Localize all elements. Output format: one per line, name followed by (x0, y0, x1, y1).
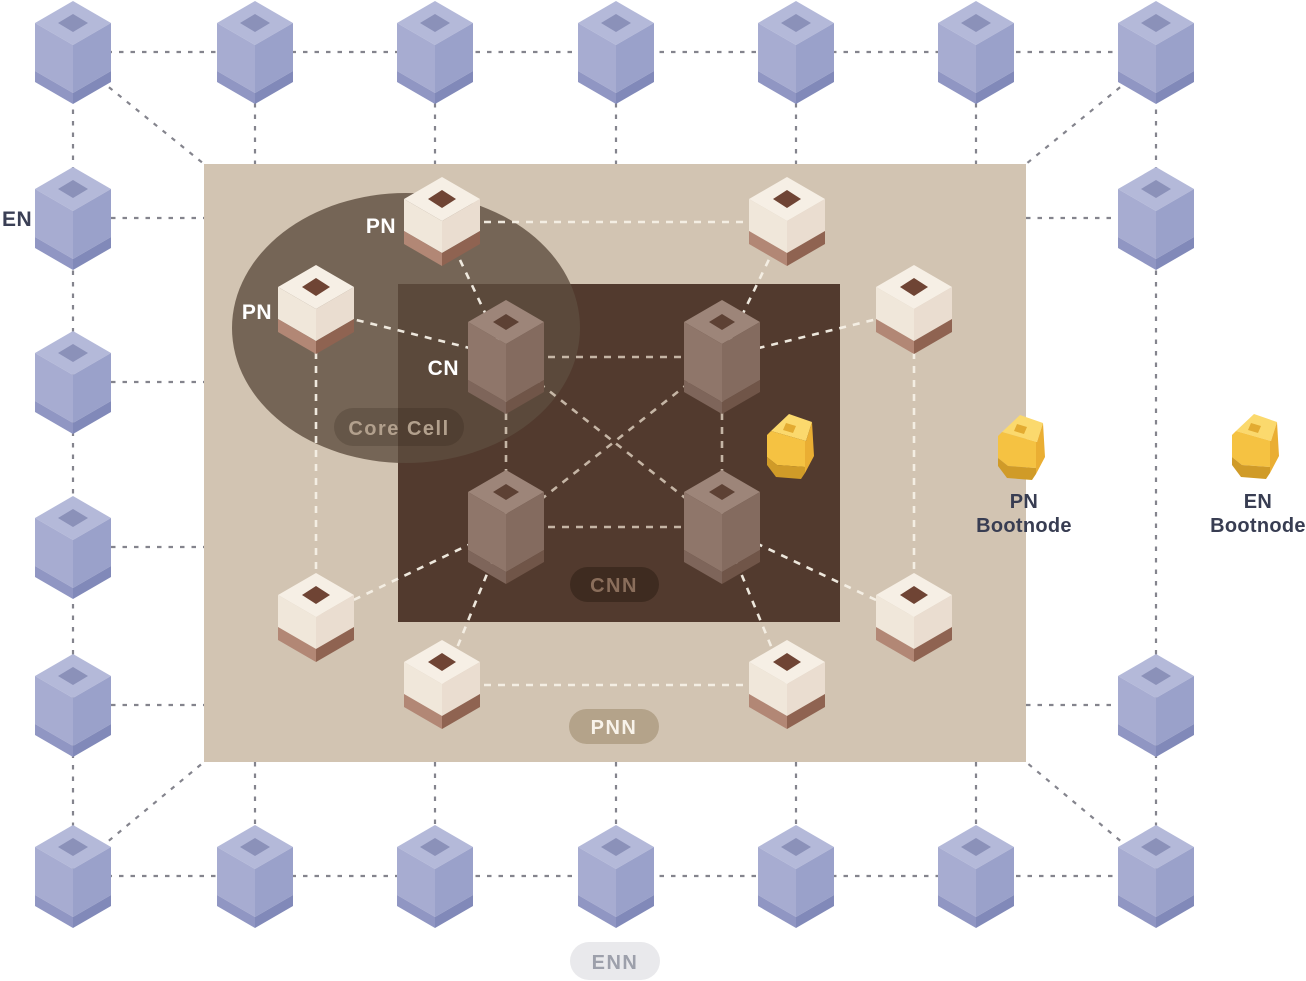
en-node-cube (35, 654, 111, 757)
cn-node-cube (684, 470, 760, 584)
cn-node-label: CN (428, 357, 459, 380)
en-node-cube (397, 1, 473, 104)
en-bootnode-label-line1: EN (1244, 491, 1272, 513)
pn-node-label-left: PN (242, 301, 272, 324)
badge-pnn-label: PNN (591, 717, 638, 739)
network-diagram: Core Cell CNN PNN ENN EN PN PN CN PN Boo… (0, 0, 1306, 981)
en-node-cube (1118, 825, 1194, 928)
badge-cnn-label: CNN (590, 575, 638, 597)
en-node-cube (578, 825, 654, 928)
en-node-cube (35, 331, 111, 434)
cn-node-cube (684, 300, 760, 414)
en-node-cube (1118, 1, 1194, 104)
en-node-cube (35, 825, 111, 928)
pn-bootnode-label-line2: Bootnode (976, 515, 1072, 537)
en-bootnode-label-line2: Bootnode (1210, 515, 1306, 537)
badge-core-cell: Core Cell (334, 408, 464, 446)
en-node-cube (35, 167, 111, 270)
cn-node-cube (468, 470, 544, 584)
en-node-cube (35, 496, 111, 599)
en-node-cube (938, 825, 1014, 928)
badge-enn-label: ENN (592, 952, 639, 974)
en-node-cube (217, 1, 293, 104)
badge-cnn: CNN (570, 567, 659, 602)
pn-node-label-top: PN (366, 215, 396, 238)
pn-bootnode-label-line1: PN (1010, 491, 1038, 513)
en-node-cube (1118, 654, 1194, 757)
badge-enn: ENN (570, 942, 660, 980)
en-node-cube (1118, 167, 1194, 270)
en-node-cube (578, 1, 654, 104)
cn-node-cube (468, 300, 544, 414)
en-node-cube (758, 825, 834, 928)
en-node-label: EN (2, 208, 32, 231)
en-node-cube (217, 825, 293, 928)
en-node-cube (758, 1, 834, 104)
badge-pnn: PNN (569, 709, 659, 744)
en-node-cube (35, 1, 111, 104)
badge-core-cell-label: Core Cell (348, 418, 449, 440)
en-node-cube (938, 1, 1014, 104)
en-node-cube (397, 825, 473, 928)
